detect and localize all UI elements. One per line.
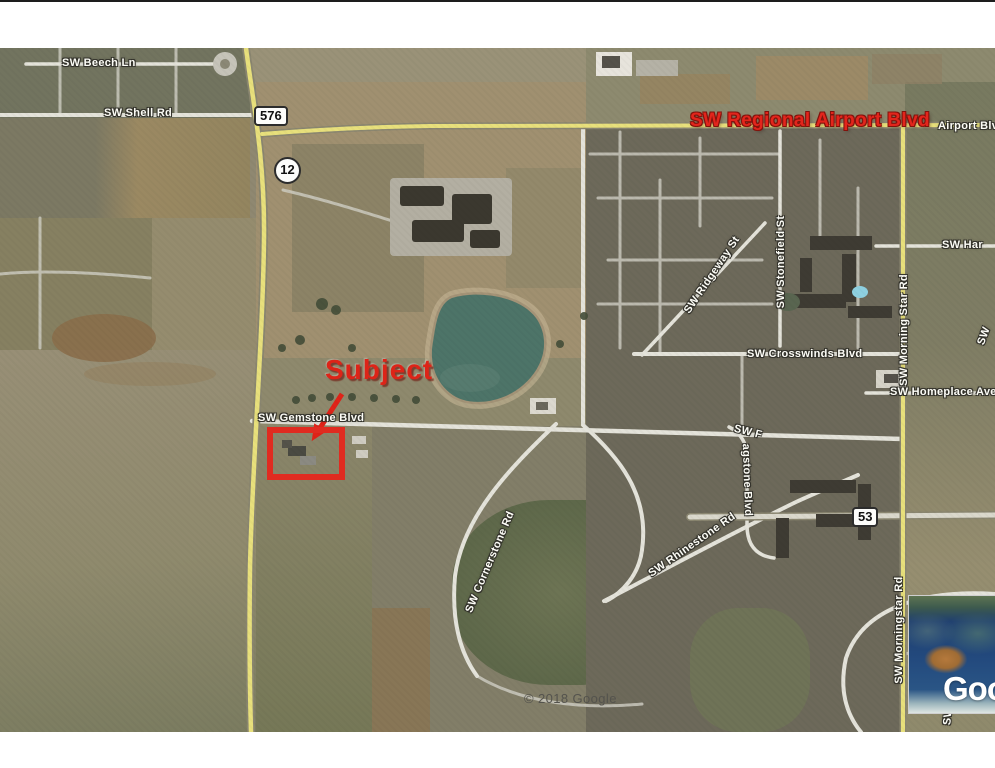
road-label-morningstar-south: SW Morningstar Rd xyxy=(893,576,905,683)
dirt-pit xyxy=(52,314,156,362)
road-label-beech: SW Beech Ln xyxy=(62,57,136,69)
road-label-homeplace: SW Homeplace Ave xyxy=(890,386,995,398)
road-label-gemstone: SW Gemstone Blvd xyxy=(258,412,364,424)
annotation-regional-airport-blvd: SW Regional Airport Blvd xyxy=(690,110,930,132)
top-margin xyxy=(0,2,995,48)
road-label-stonefield: SW Stonefield St xyxy=(775,216,787,309)
route-shield-53: 53 xyxy=(852,507,878,527)
road-label-airport-partial: Airport Blv xyxy=(938,120,995,132)
google-inset-map: Goo xyxy=(908,595,995,714)
aerial-map-photo: SW Beech Ln SW Shell Rd Airport Blv SW H… xyxy=(0,0,995,768)
route-shield-12: 12 xyxy=(274,157,301,184)
road-label-morning-star: SW Morning Star Rd xyxy=(898,274,910,386)
road-label-shell: SW Shell Rd xyxy=(104,107,172,119)
subject-label: Subject xyxy=(325,354,433,386)
road-label-crosswinds: SW Crosswinds Blvd xyxy=(747,348,862,360)
google-logo-partial: Goo xyxy=(943,670,995,708)
copyright-attribution: © 2018 Google xyxy=(524,691,617,706)
pond xyxy=(432,295,544,402)
bottom-margin xyxy=(0,732,995,768)
pool xyxy=(852,286,868,298)
subject-highlight-box xyxy=(267,427,345,480)
road-label-flagstone-rest: agstone Blvd xyxy=(740,443,755,516)
route-shield-576: 576 xyxy=(254,106,288,126)
roads-layer xyxy=(0,48,995,732)
apartments-right xyxy=(788,236,892,318)
satellite-map: SW Beech Ln SW Shell Rd Airport Blv SW H… xyxy=(0,48,995,732)
road-label-har-partial: SW Har xyxy=(942,239,983,251)
apartment-complex xyxy=(390,178,512,256)
gas-station xyxy=(596,52,678,76)
